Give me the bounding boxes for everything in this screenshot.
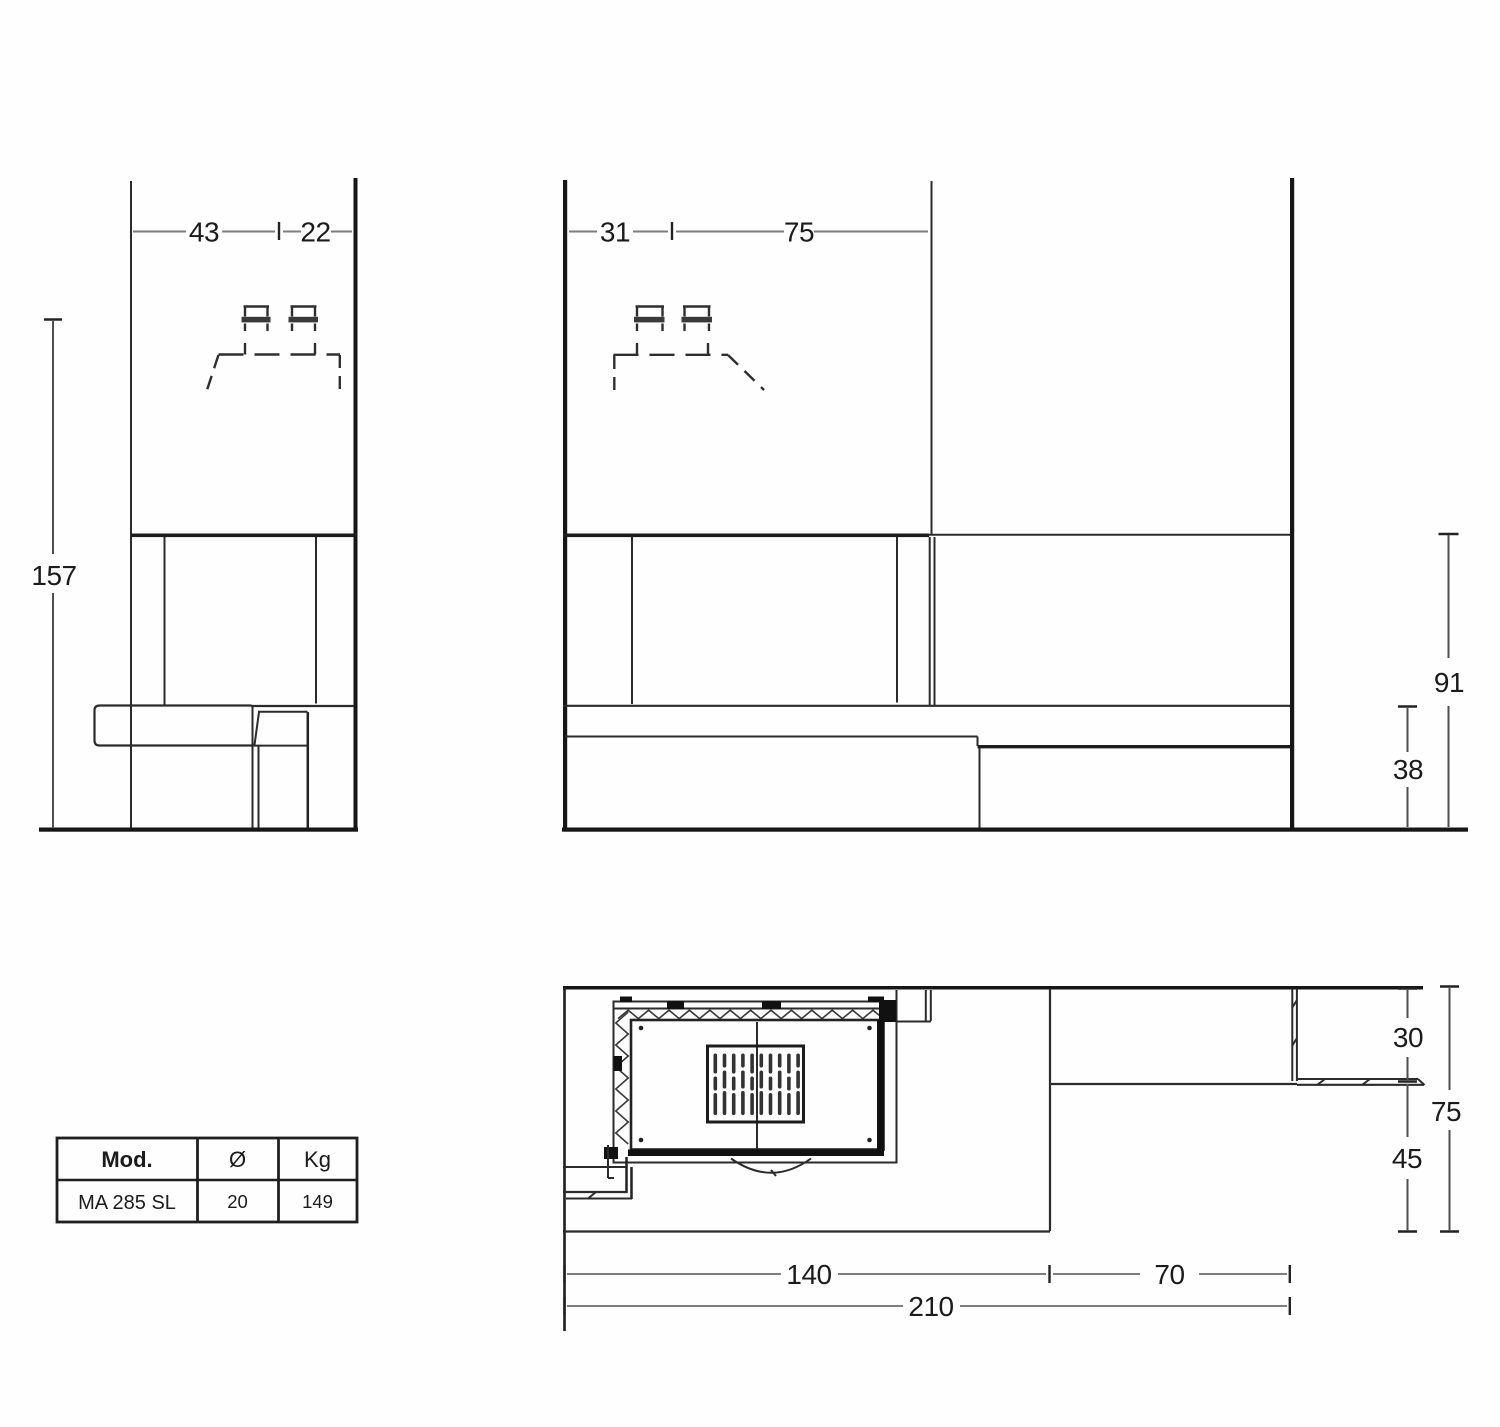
svg-text:70: 70 [1154, 1259, 1184, 1290]
svg-text:75: 75 [784, 217, 814, 248]
svg-text:30: 30 [1393, 1022, 1423, 1053]
svg-text:20: 20 [227, 1191, 248, 1212]
svg-text:43: 43 [189, 217, 219, 248]
svg-text:38: 38 [1393, 754, 1423, 785]
svg-text:157: 157 [31, 560, 76, 591]
svg-text:210: 210 [908, 1291, 953, 1322]
svg-text:91: 91 [1434, 667, 1464, 698]
svg-text:149: 149 [302, 1191, 333, 1212]
svg-text:31: 31 [600, 217, 630, 248]
svg-text:Kg: Kg [304, 1147, 331, 1172]
svg-text:MA 285 SL: MA 285 SL [78, 1192, 176, 1214]
svg-text:45: 45 [1392, 1143, 1422, 1174]
svg-text:22: 22 [300, 217, 330, 248]
svg-text:Mod.: Mod. [101, 1147, 152, 1172]
svg-text:75: 75 [1431, 1096, 1461, 1127]
svg-text:Ø: Ø [229, 1147, 246, 1172]
svg-text:140: 140 [786, 1259, 831, 1290]
